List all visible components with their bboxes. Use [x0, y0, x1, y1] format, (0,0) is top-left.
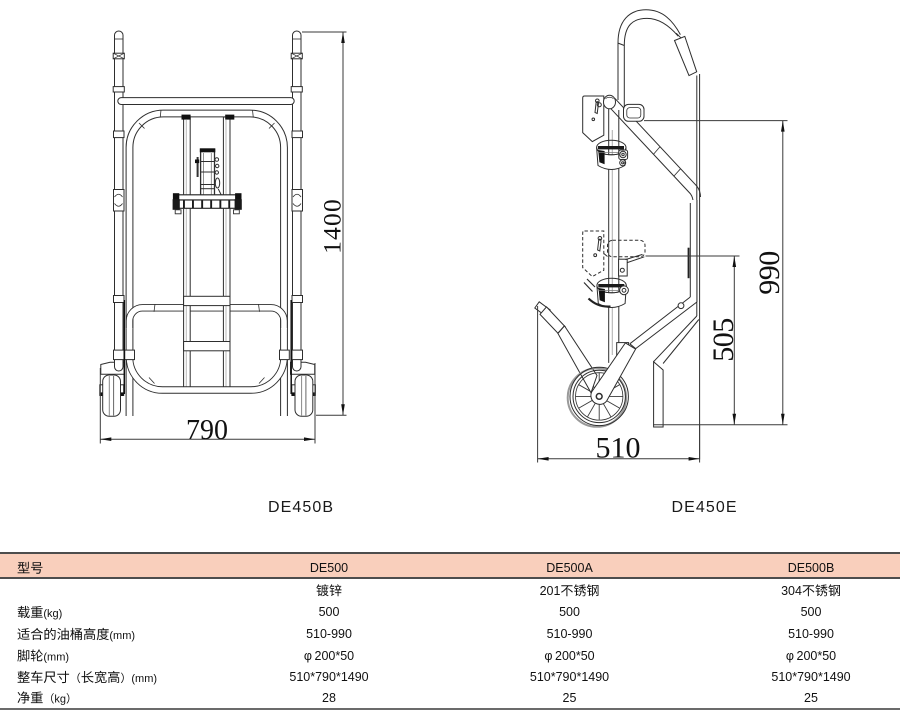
svg-text:304: 304: [781, 584, 802, 598]
svg-text:(kg): (kg): [43, 608, 62, 620]
svg-text:kg: kg: [54, 694, 66, 706]
svg-text:(mm): (mm): [43, 652, 69, 664]
svg-text:(mm): (mm): [131, 673, 157, 685]
svg-text:201: 201: [540, 584, 561, 598]
svg-text:(mm): (mm): [109, 630, 135, 642]
